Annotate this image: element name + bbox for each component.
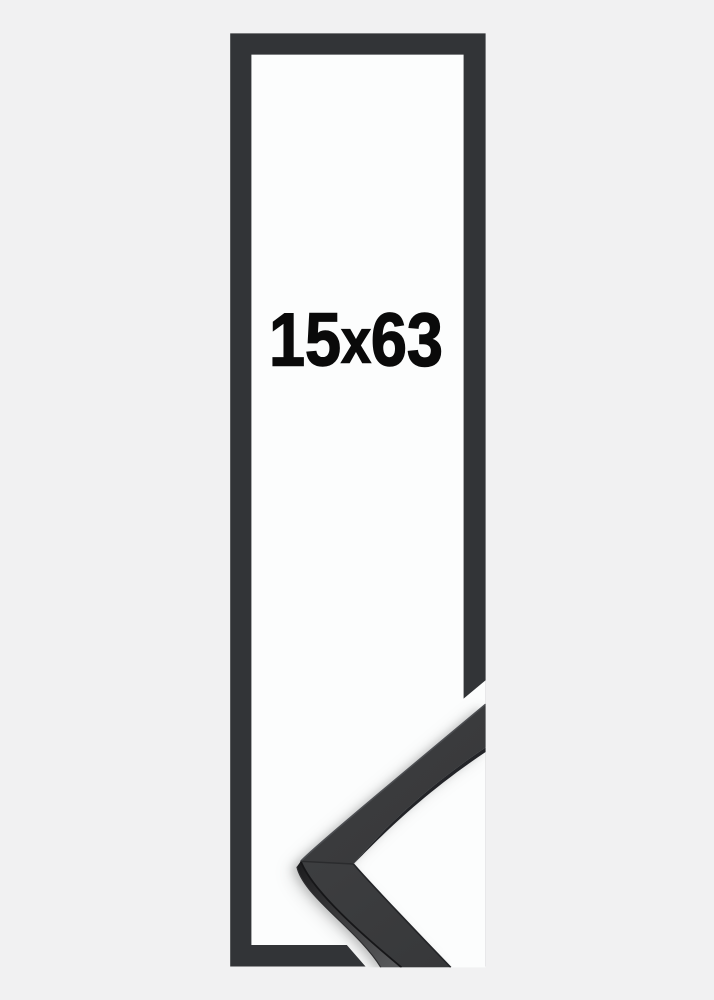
svg-text:15x63: 15x63 xyxy=(269,298,443,382)
